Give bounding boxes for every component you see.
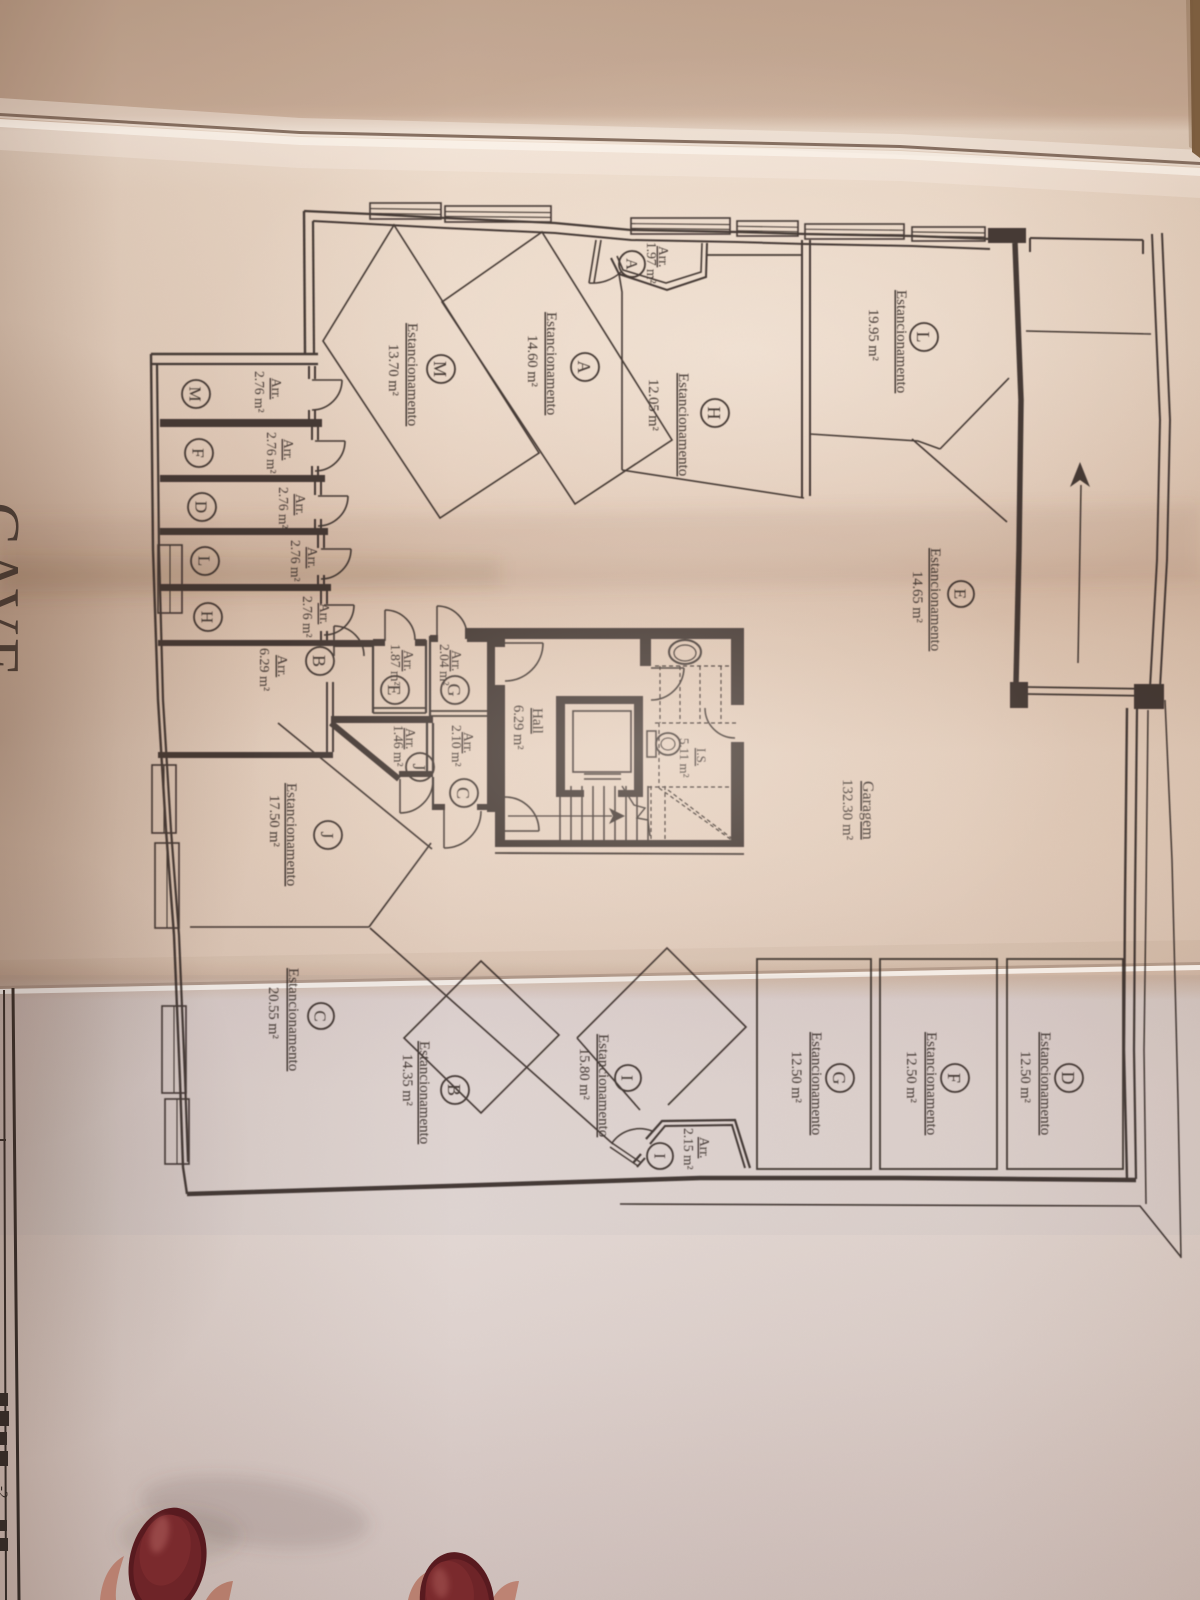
svg-text:L: L xyxy=(913,332,933,343)
svg-text:20.55 m²: 20.55 m² xyxy=(265,987,281,1040)
svg-text:12.50 m²: 12.50 m² xyxy=(788,1051,804,1104)
svg-text:2.76 m²: 2.76 m² xyxy=(300,596,315,638)
svg-text:Estancionamento: Estancionamento xyxy=(595,1034,611,1137)
svg-text:Arr.: Arr. xyxy=(274,655,289,677)
svg-text:2.10 m²: 2.10 m² xyxy=(449,725,464,767)
svg-text:Arr.: Arr. xyxy=(305,547,320,568)
svg-text:J: J xyxy=(409,763,429,770)
svg-text:Estancionamento: Estancionamento xyxy=(893,290,909,393)
svg-text:6.29 m²: 6.29 m² xyxy=(256,648,271,691)
svg-text:14.65 m²: 14.65 m² xyxy=(909,571,925,624)
svg-text:19.95 m²: 19.95 m² xyxy=(865,309,881,362)
svg-text:15.80 m²: 15.80 m² xyxy=(576,1048,592,1101)
svg-text:14.60 m²: 14.60 m² xyxy=(524,335,540,388)
svg-text:C: C xyxy=(311,1010,330,1021)
svg-text:L: L xyxy=(195,556,214,566)
svg-text:-2: -2 xyxy=(0,1486,10,1499)
svg-text:J: J xyxy=(317,831,337,838)
svg-text:12.50 m²: 12.50 m² xyxy=(903,1051,919,1104)
svg-text:M: M xyxy=(186,386,205,401)
svg-text:Estancionamento: Estancionamento xyxy=(675,373,691,476)
svg-text:Hall: Hall xyxy=(529,708,545,734)
svg-text:Garagem: Garagem xyxy=(859,781,876,840)
svg-text:D: D xyxy=(1058,1072,1078,1085)
svg-text:E: E xyxy=(384,685,404,696)
svg-text:132.30 m²: 132.30 m² xyxy=(839,779,855,841)
svg-text:12.05 m²: 12.05 m² xyxy=(645,379,661,432)
svg-text:Arr.: Arr. xyxy=(269,378,284,399)
svg-text:C: C xyxy=(453,787,473,799)
svg-text:1.87 m²: 1.87 m² xyxy=(388,644,403,686)
svg-text:M: M xyxy=(430,361,450,377)
svg-text:Estancionamento: Estancionamento xyxy=(923,1032,939,1135)
svg-text:1.46 m²: 1.46 m² xyxy=(391,725,406,767)
svg-text:Estancionamento: Estancionamento xyxy=(927,548,943,651)
svg-text:Estancionamento: Estancionamento xyxy=(1037,1032,1053,1135)
svg-text:12.50 m²: 12.50 m² xyxy=(1017,1051,1033,1104)
svg-text:14.35 m²: 14.35 m² xyxy=(399,1054,415,1107)
svg-text:Arr.: Arr. xyxy=(293,494,308,515)
svg-text:G: G xyxy=(829,1072,849,1085)
svg-text:B: B xyxy=(309,655,329,667)
svg-text:2.76 m²: 2.76 m² xyxy=(288,540,303,582)
svg-text:2.76 m²: 2.76 m² xyxy=(264,432,279,474)
svg-text:5.11 m²: 5.11 m² xyxy=(677,738,692,778)
svg-text:I: I xyxy=(651,1153,668,1158)
svg-text:Estancionamento: Estancionamento xyxy=(283,783,299,886)
svg-text:Arr.: Arr. xyxy=(281,439,296,460)
svg-text:2.15 m²: 2.15 m² xyxy=(681,1128,696,1170)
svg-text:H: H xyxy=(198,611,217,623)
svg-text:Arr.: Arr. xyxy=(317,603,332,624)
svg-text:E: E xyxy=(951,589,970,599)
svg-text:Estancionamento: Estancionamento xyxy=(543,312,559,415)
svg-text:CAVE: CAVE xyxy=(0,502,33,680)
svg-text:A: A xyxy=(623,258,640,270)
svg-text:1.97 m²: 1.97 m² xyxy=(644,242,659,284)
svg-text:A: A xyxy=(574,361,594,374)
svg-text:2.04 m²: 2.04 m² xyxy=(437,644,452,686)
svg-text:Estancionamento: Estancionamento xyxy=(808,1032,824,1135)
svg-text:Estancionamento: Estancionamento xyxy=(404,323,420,426)
svg-text:6.29 m²: 6.29 m² xyxy=(510,705,526,750)
svg-text:F: F xyxy=(189,448,208,457)
svg-text:I.S.: I.S. xyxy=(694,748,709,766)
svg-text:F: F xyxy=(944,1073,964,1083)
svg-text:Estancionamento: Estancionamento xyxy=(416,1041,432,1144)
svg-text:17.50 m²: 17.50 m² xyxy=(266,795,282,848)
svg-text:2.76 m²: 2.76 m² xyxy=(276,487,291,529)
svg-text:I: I xyxy=(618,1075,637,1081)
svg-text:D: D xyxy=(192,501,211,513)
svg-text:B: B xyxy=(444,1084,464,1096)
svg-text:2.76 m²: 2.76 m² xyxy=(252,371,267,413)
svg-text:Arr.: Arr. xyxy=(697,1137,712,1158)
svg-text:13.70 m²: 13.70 m² xyxy=(385,344,401,397)
svg-text:Estancionamento: Estancionamento xyxy=(285,968,301,1071)
svg-text:H: H xyxy=(704,407,724,420)
